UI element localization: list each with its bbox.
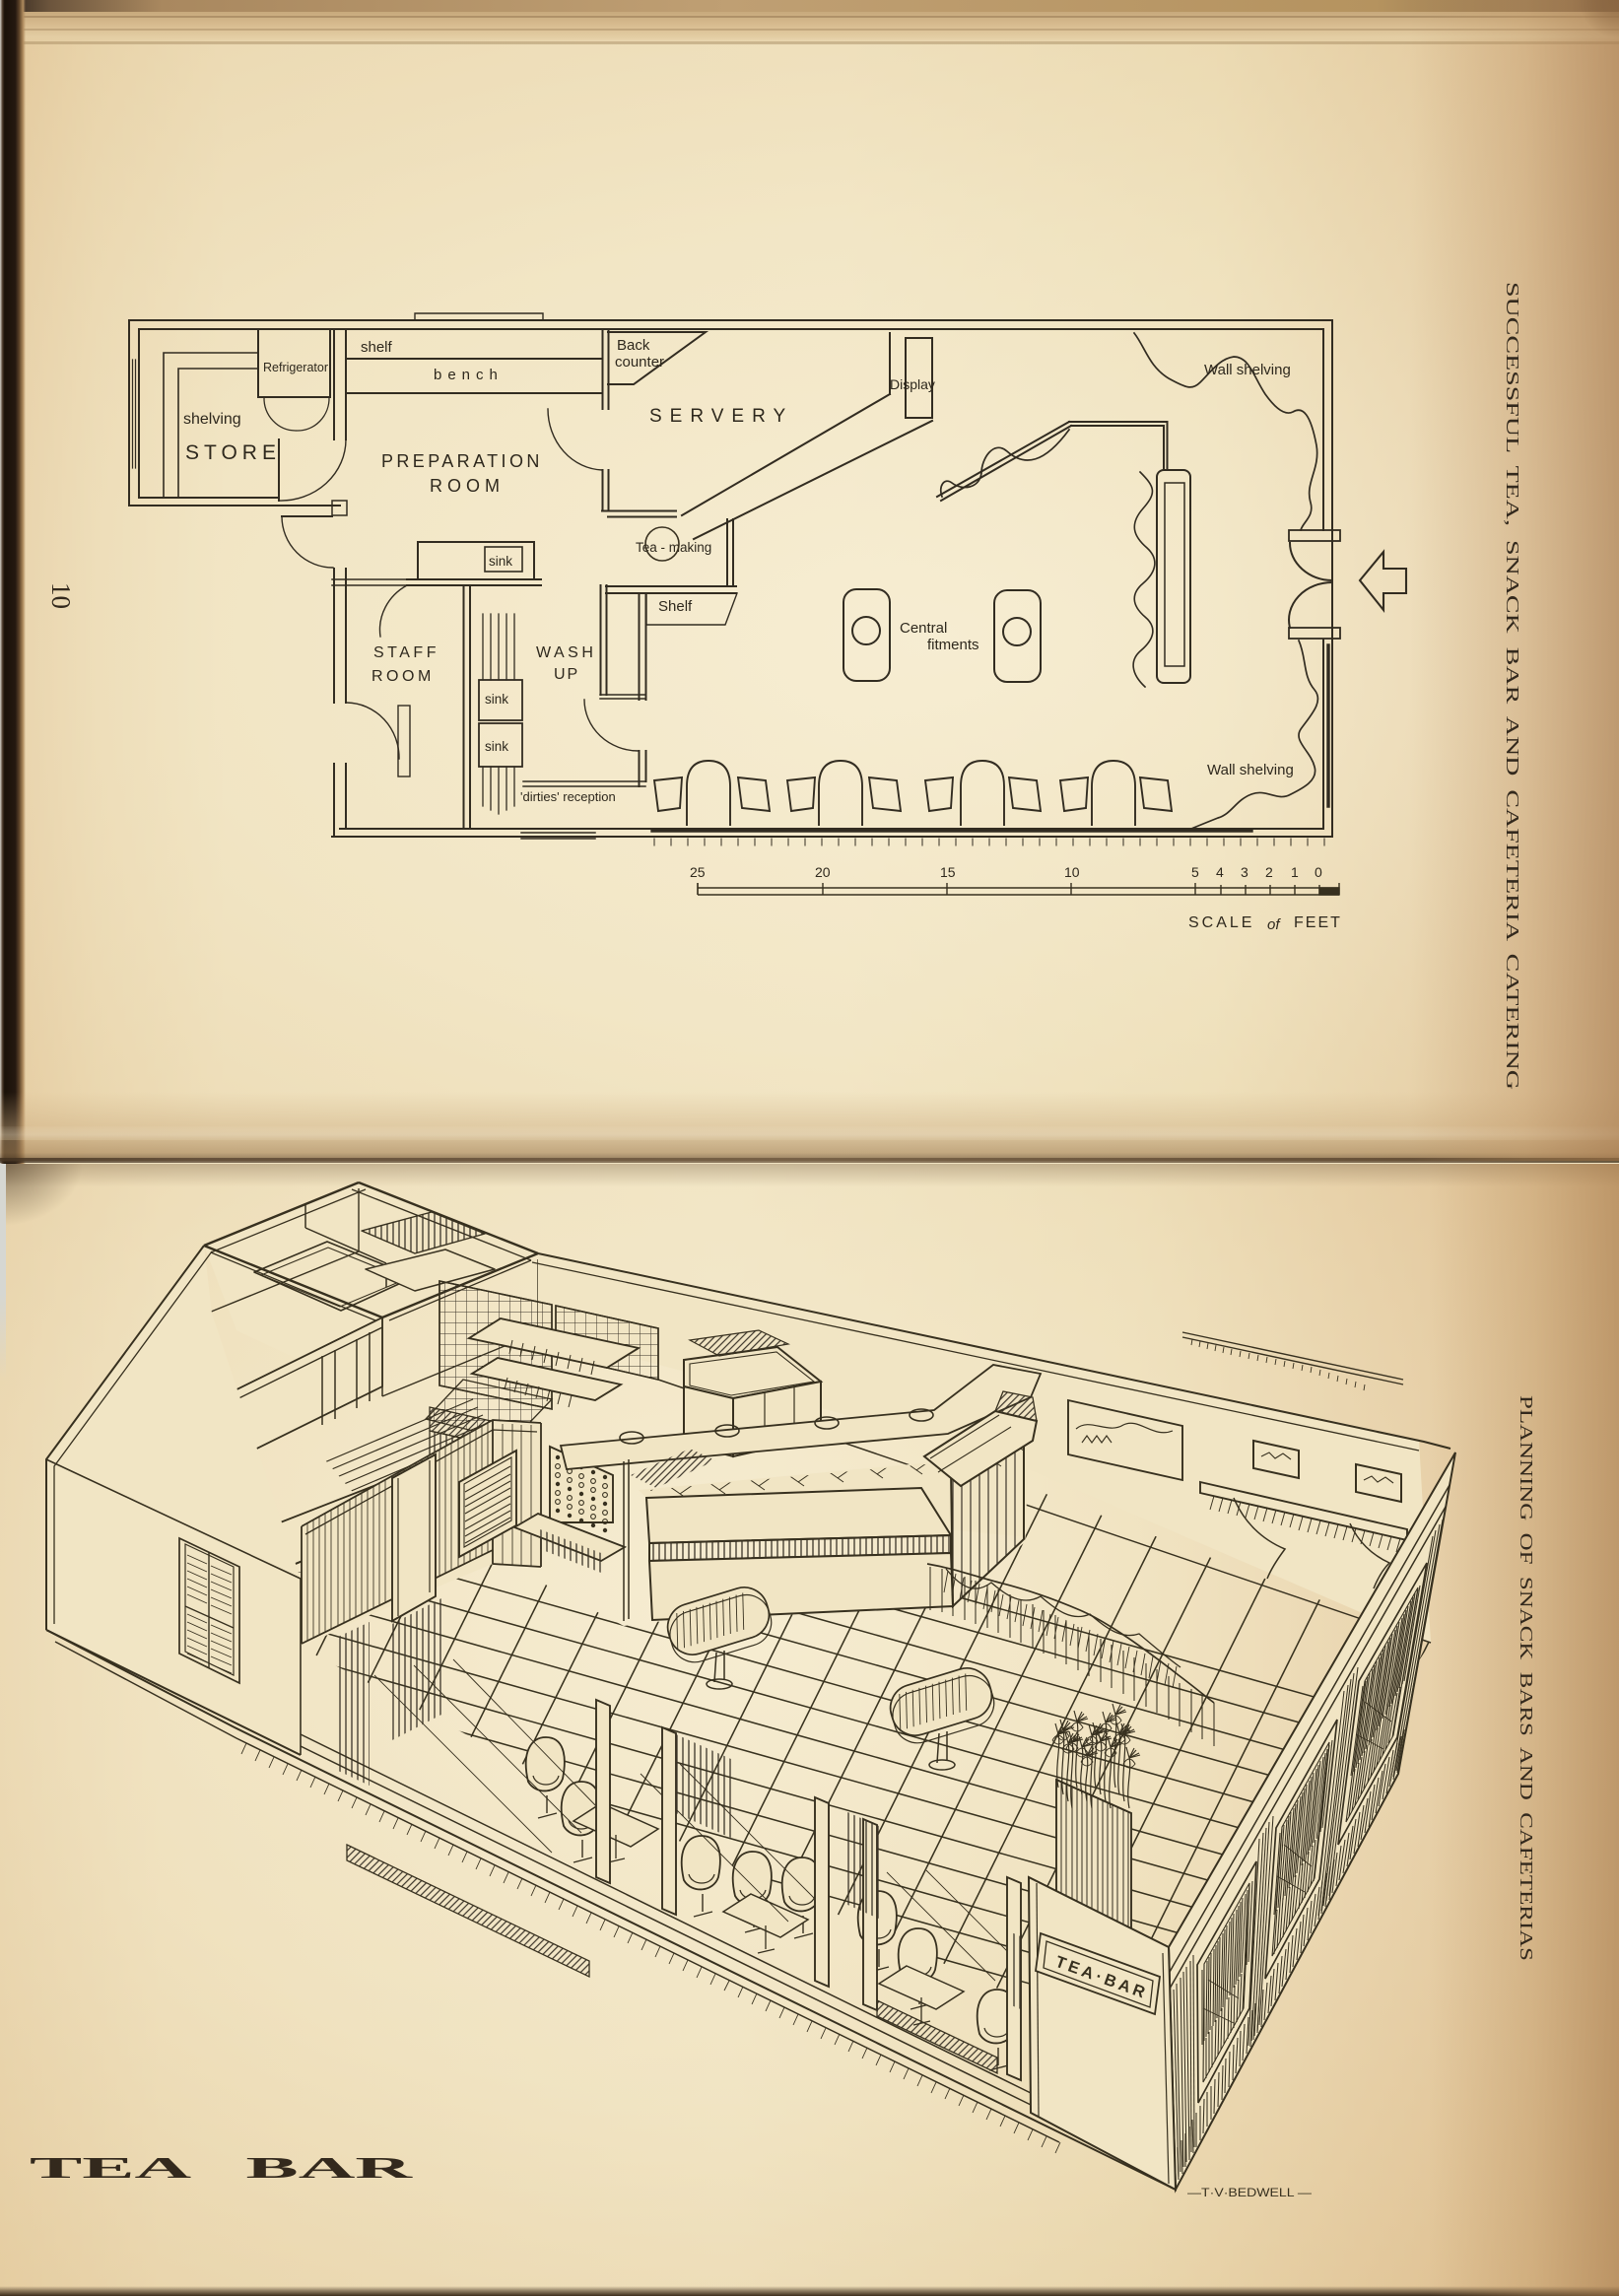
svg-text:of: of <box>1267 916 1281 933</box>
svg-text:10: 10 <box>46 582 76 609</box>
svg-text:SUCCESSFUL TEA, SNACK BAR: SUCCESSFUL TEA, SNACK BAR AND CAFETERIA … <box>1503 282 1522 1091</box>
svg-text:PREPARATION: PREPARATION <box>381 451 543 471</box>
svg-text:FEET: FEET <box>1294 914 1342 931</box>
svg-text:15: 15 <box>940 864 956 880</box>
svg-text:2: 2 <box>1265 864 1273 880</box>
svg-text:sink: sink <box>489 554 512 569</box>
svg-text:TEA BAR: TEA BAR <box>30 2150 414 2185</box>
svg-text:20: 20 <box>815 864 831 880</box>
svg-text:PLANNING OF SNACK BARS AND: PLANNING OF SNACK BARS AND CAFETERIAS <box>1517 1395 1536 1961</box>
svg-text:sink: sink <box>485 692 508 707</box>
svg-text:UP: UP <box>554 666 579 683</box>
svg-text:'dirties' reception: 'dirties' reception <box>520 789 616 804</box>
svg-text:4: 4 <box>1216 864 1224 880</box>
svg-text:Wall shelving: Wall shelving <box>1204 362 1291 378</box>
svg-text:Central: Central <box>900 620 947 637</box>
svg-text:shelf: shelf <box>361 339 393 356</box>
svg-text:sink: sink <box>485 739 508 754</box>
svg-text:25: 25 <box>690 864 706 880</box>
svg-text:WASH: WASH <box>536 644 596 661</box>
svg-text:Wall shelving: Wall shelving <box>1207 762 1294 778</box>
svg-text:5: 5 <box>1191 864 1199 880</box>
svg-text:counter: counter <box>615 354 664 371</box>
svg-text:fitments: fitments <box>927 637 979 653</box>
svg-text:SERVERY: SERVERY <box>649 406 793 427</box>
svg-text:ROOM: ROOM <box>430 476 505 496</box>
svg-text:Back: Back <box>617 337 650 354</box>
svg-text:0: 0 <box>1315 864 1322 880</box>
svg-text:shelving: shelving <box>183 411 241 428</box>
svg-text:SCALE: SCALE <box>1188 914 1254 931</box>
svg-text:1: 1 <box>1291 864 1299 880</box>
svg-text:3: 3 <box>1241 864 1248 880</box>
svg-text:STAFF: STAFF <box>373 644 439 661</box>
svg-text:Refrigerator: Refrigerator <box>263 361 328 374</box>
svg-text:ROOM: ROOM <box>371 668 435 685</box>
svg-text:Display: Display <box>890 376 935 392</box>
svg-text:STORE: STORE <box>185 441 281 464</box>
svg-text:bench: bench <box>434 367 504 383</box>
svg-text:10: 10 <box>1064 864 1080 880</box>
svg-text:Shelf: Shelf <box>658 598 693 615</box>
svg-text:—T·V·BEDWELL —: —T·V·BEDWELL — <box>1187 2186 1312 2199</box>
